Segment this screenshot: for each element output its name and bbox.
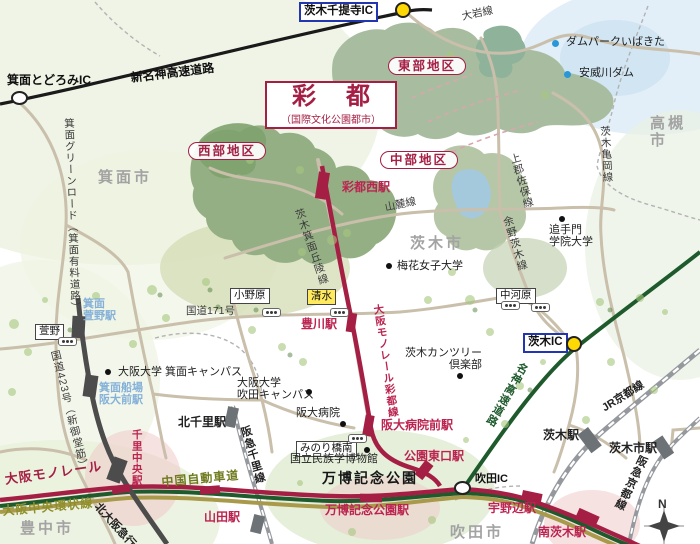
- station-label-saito-nishi: 彩都西駅: [342, 181, 390, 194]
- saito-title-box: 彩 都 （国際文化公園都市）: [265, 81, 397, 129]
- poi-label-baika-womens: 梅花女子大学: [397, 260, 463, 272]
- ic-box-ibaraki: 茨木IC: [523, 333, 568, 353]
- district-oval-east: 東部地区: [388, 57, 466, 75]
- station-label-kita-senri: 北千里駅: [178, 416, 226, 429]
- poi-dot-dam-park: [552, 40, 559, 47]
- compass-n-label: N: [658, 498, 667, 511]
- ic-label-suita: 吹田IC: [475, 473, 508, 485]
- traffic-signal-ibaraki-ic: [531, 303, 550, 312]
- district-oval-central: 中部地区: [380, 151, 458, 169]
- poi-label-otemon-gakuin: 追手門 学院大学: [549, 224, 593, 249]
- ic-dot-sendaiji: [395, 2, 411, 18]
- road-label-ibaraki-kameoka: 茨木亀岡線: [598, 125, 613, 183]
- poi-dot-baika: [386, 263, 392, 269]
- traffic-signal-shimizu: [330, 308, 349, 317]
- poi-label-banpaku-park: 万博記念公園: [322, 471, 418, 487]
- poi-dot-country-club: [457, 373, 463, 379]
- station-label-toyokawa: 豊川駅: [301, 318, 337, 331]
- station-label-yamada: 山田駅: [204, 511, 240, 524]
- ic-dot-todoromi: [11, 91, 28, 105]
- city-label-ibaraki: 茨木市: [410, 236, 464, 253]
- district-oval-west: 西部地区: [188, 142, 266, 160]
- poi-label-handai-hospital: 阪大病院: [296, 407, 340, 419]
- city-label-minoh: 箕面市: [98, 170, 152, 187]
- traffic-signal-nakagawara: [501, 301, 520, 310]
- saito-area-map: 彩 都 （国際文化公園都市） 茨木千提寺IC茨木IC萱野小野原清水中河原みのり橋…: [0, 0, 700, 544]
- traffic-signal-minoribashi: [348, 434, 367, 443]
- ic-dot-suita: [454, 481, 471, 495]
- poi-dot-aigawa-dam: [564, 71, 571, 78]
- poi-label-dam-park-ibakita: ダムパークいばきた: [566, 36, 665, 48]
- station-label-minoh-kayano: 箕面 萱野駅: [83, 298, 116, 323]
- station-label-handai-byoin-mae: 阪大病院前駅: [381, 419, 453, 432]
- poi-label-aigawa-dam: 安威川ダム: [579, 67, 634, 79]
- ic-box-ibaraki-sendaiji: 茨木千提寺IC: [299, 2, 378, 22]
- station-label-banpaku-kinen-koen: 万博記念公園駅: [325, 504, 409, 517]
- road-label-route171: 国道171号: [186, 306, 235, 318]
- compass-icon: [644, 506, 684, 544]
- poi-dot-minpaku: [364, 447, 370, 453]
- ic-dot-ibaraki: [566, 336, 582, 352]
- city-label-toyonaka: 豊中市: [20, 521, 74, 538]
- poi-label-osaka-univ-suita: 大阪大学 吹田キャンパス: [237, 377, 314, 402]
- traffic-signal-kayano: [58, 337, 77, 346]
- poi-dot-handai-hospital: [340, 421, 346, 427]
- station-label-ibaraki-shi: 茨木市駅: [609, 442, 657, 455]
- station-label-unobe: 宇野辺駅: [488, 502, 536, 515]
- ic-label-minoh-todoromi: 箕面とどろみIC: [7, 74, 91, 87]
- station-label-ibaraki: 茨木駅: [543, 429, 579, 442]
- station-label-koen-higashiguchi: 公園東口駅: [404, 450, 464, 463]
- poi-dot-osaka-univ-minoh: [105, 369, 111, 375]
- city-label-takatsuki: 高槻市: [650, 116, 700, 150]
- poi-dot-osaka-univ-suita: [306, 389, 312, 395]
- poi-label-minpaku-museum: 国立民族学博物館: [290, 453, 378, 465]
- traffic-signal-onohara: [262, 308, 281, 317]
- station-label-minoh-semba-handai-mae: 箕面船場 阪大前駅: [99, 382, 143, 407]
- station-label-minami-ibaraki: 南茨木駅: [538, 526, 586, 539]
- saito-subtitle: （国際文化公園都市）: [281, 111, 381, 126]
- station-label-senri-chuo: 千里中央駅: [130, 429, 142, 487]
- poi-label-ibaraki-country-club: 茨木カンツリー 倶楽部: [405, 347, 482, 372]
- poi-label-osaka-univ-minoh: 大阪大学 箕面キャンパス: [118, 366, 242, 378]
- poi-dot-otemon: [559, 216, 565, 222]
- signal-box-shimizu: 清水: [307, 289, 336, 305]
- signal-box-onohara: 小野原: [230, 288, 270, 304]
- saito-title: 彩 都: [280, 85, 382, 109]
- city-label-suita: 吹田市: [450, 525, 504, 542]
